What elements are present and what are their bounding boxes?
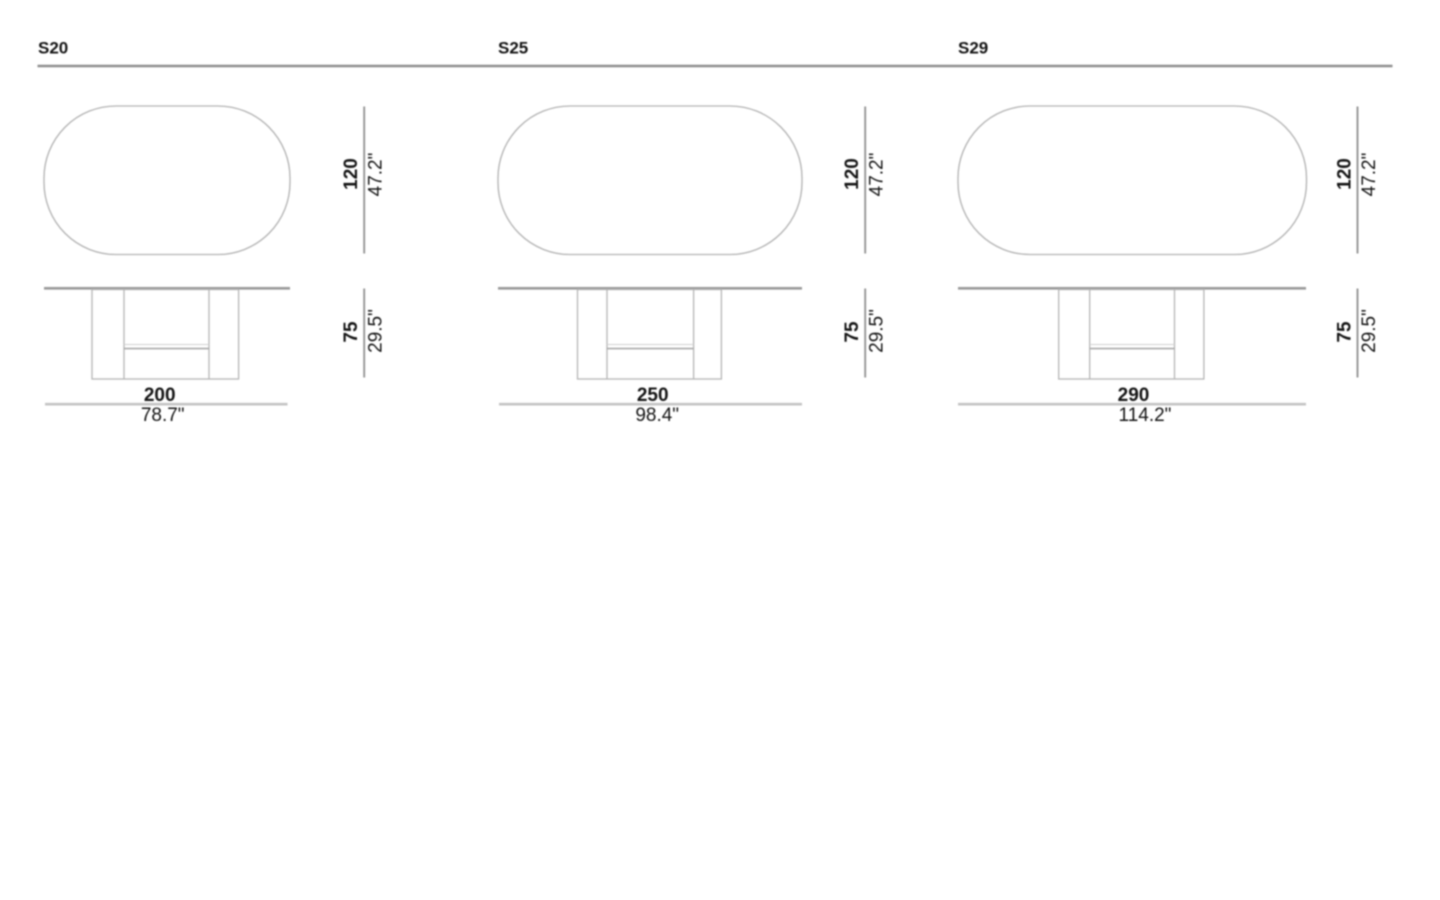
svg-text:75: 75 — [842, 321, 863, 343]
svg-text:114.2": 114.2" — [1119, 405, 1172, 426]
svg-text:29.5": 29.5" — [867, 309, 888, 353]
svg-text:S20: S20 — [38, 39, 68, 58]
svg-text:S29: S29 — [958, 39, 988, 58]
svg-text:47.2": 47.2" — [1359, 153, 1380, 197]
svg-text:29.5": 29.5" — [366, 309, 387, 353]
svg-text:290: 290 — [1118, 385, 1150, 406]
svg-text:47.2": 47.2" — [366, 153, 387, 197]
svg-text:29.5": 29.5" — [1359, 309, 1380, 353]
svg-text:120: 120 — [1335, 158, 1356, 190]
svg-text:75: 75 — [341, 321, 362, 343]
svg-text:47.2": 47.2" — [867, 153, 888, 197]
svg-text:98.4": 98.4" — [635, 405, 679, 426]
svg-text:120: 120 — [341, 158, 362, 190]
svg-text:250: 250 — [637, 385, 669, 406]
svg-text:75: 75 — [1335, 321, 1356, 343]
svg-text:78.7": 78.7" — [141, 405, 185, 426]
svg-text:120: 120 — [842, 158, 863, 190]
svg-text:S25: S25 — [498, 39, 528, 58]
svg-text:200: 200 — [144, 385, 176, 406]
